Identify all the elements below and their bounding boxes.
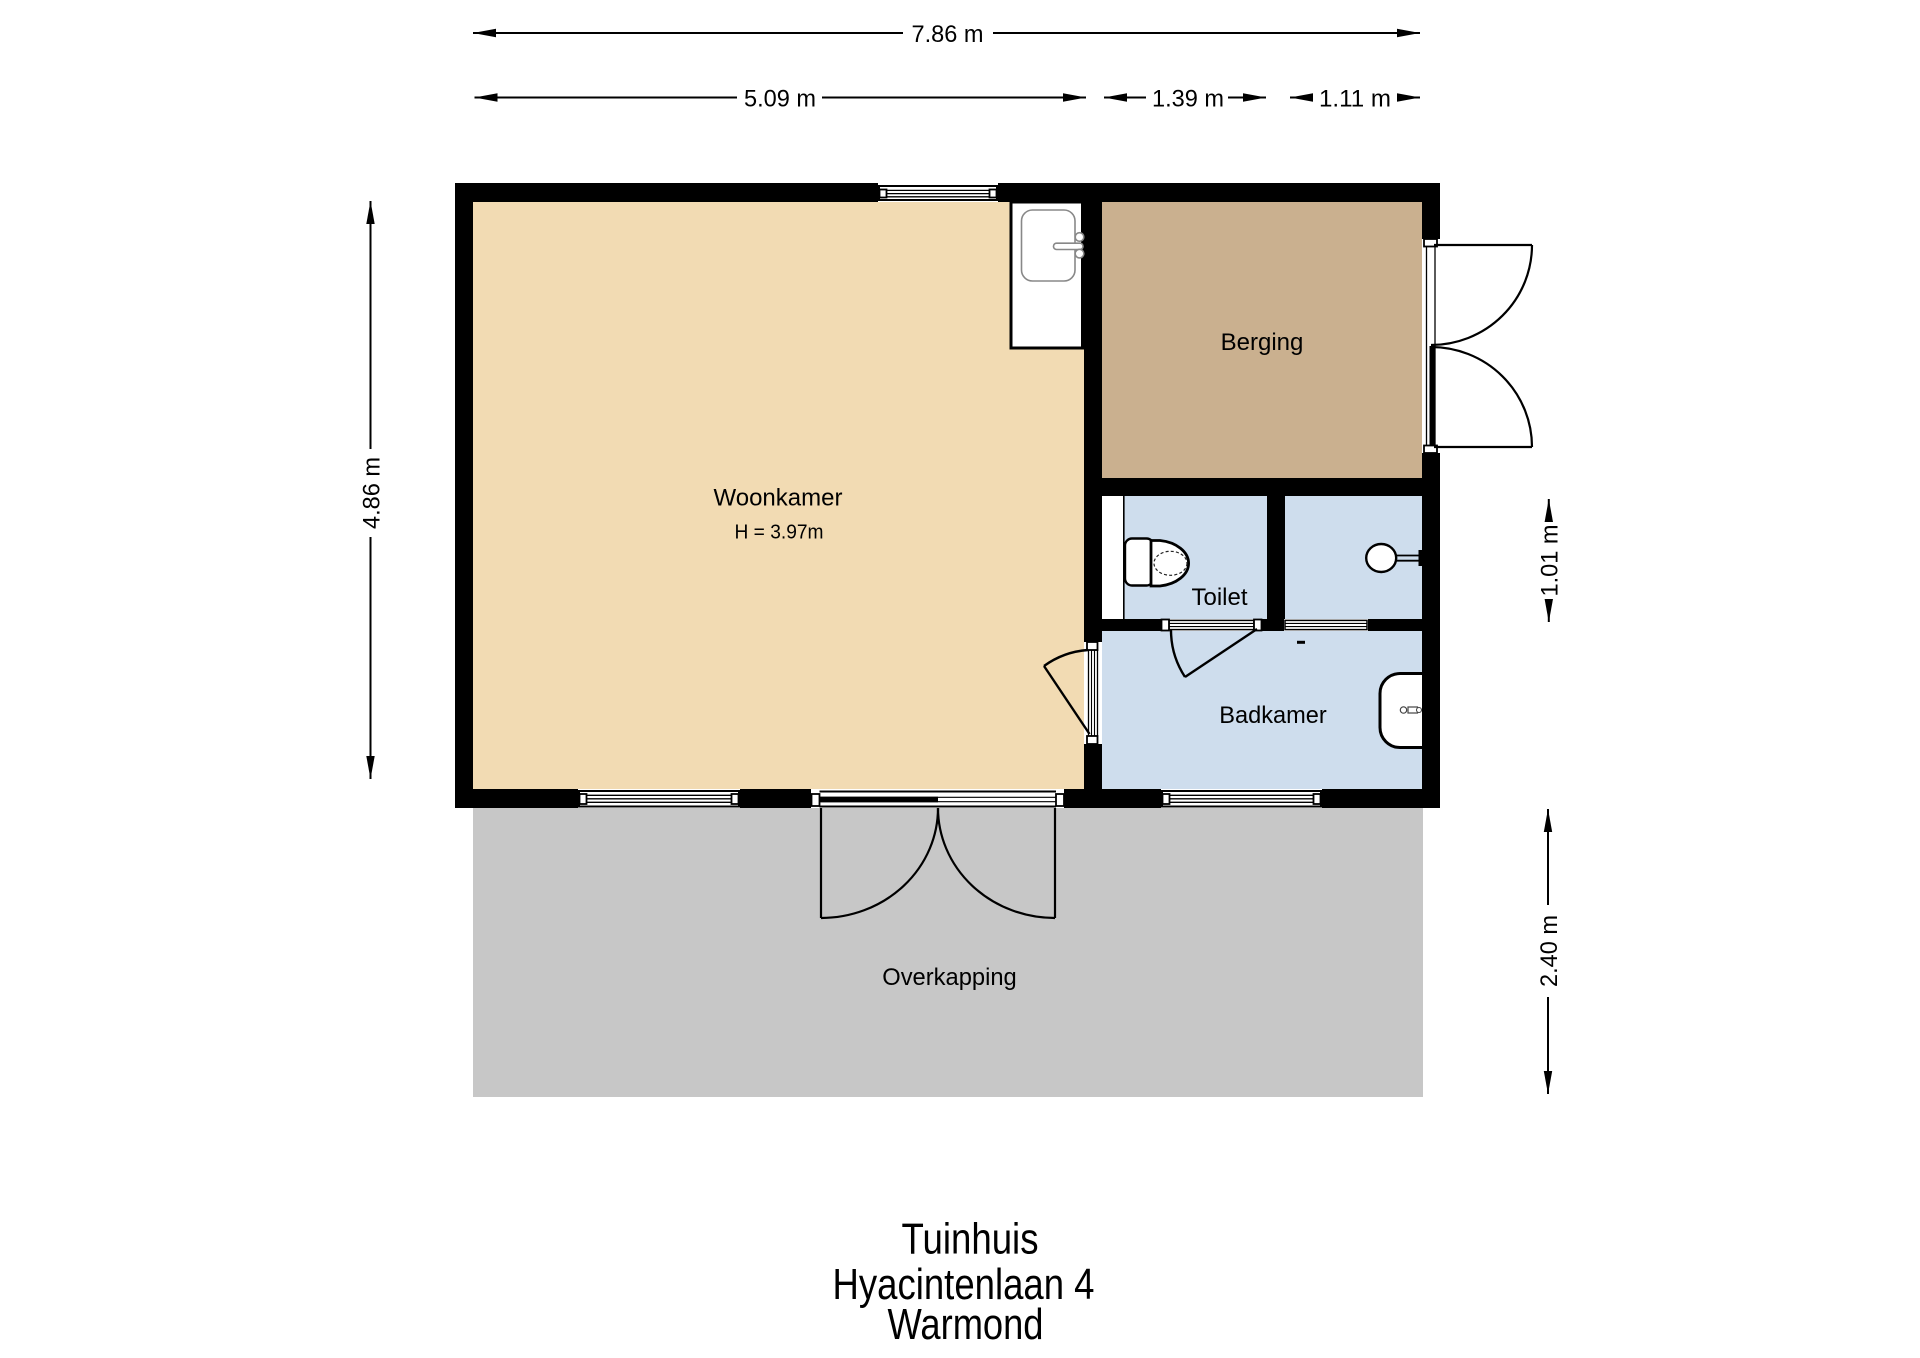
svg-text:2.40 m: 2.40 m — [1536, 915, 1563, 987]
svg-text:4.86 m: 4.86 m — [358, 457, 385, 529]
svg-text:1.11 m: 1.11 m — [1319, 85, 1391, 112]
svg-text:Woonkamer: Woonkamer — [714, 485, 843, 512]
svg-text:1.39 m: 1.39 m — [1152, 85, 1224, 112]
svg-text:Berging: Berging — [1221, 329, 1304, 356]
svg-text:5.09 m: 5.09 m — [744, 85, 816, 112]
svg-text:H = 3.97m: H = 3.97m — [735, 522, 824, 544]
svg-text:Warmond: Warmond — [888, 1300, 1044, 1349]
svg-text:Overkapping: Overkapping — [882, 964, 1017, 991]
svg-text:1.01 m: 1.01 m — [1537, 525, 1564, 597]
svg-text:Toilet: Toilet — [1191, 584, 1247, 611]
svg-text:7.86 m: 7.86 m — [912, 21, 984, 48]
svg-text:Tuinhuis: Tuinhuis — [902, 1215, 1039, 1264]
svg-text:Badkamer: Badkamer — [1219, 702, 1327, 729]
